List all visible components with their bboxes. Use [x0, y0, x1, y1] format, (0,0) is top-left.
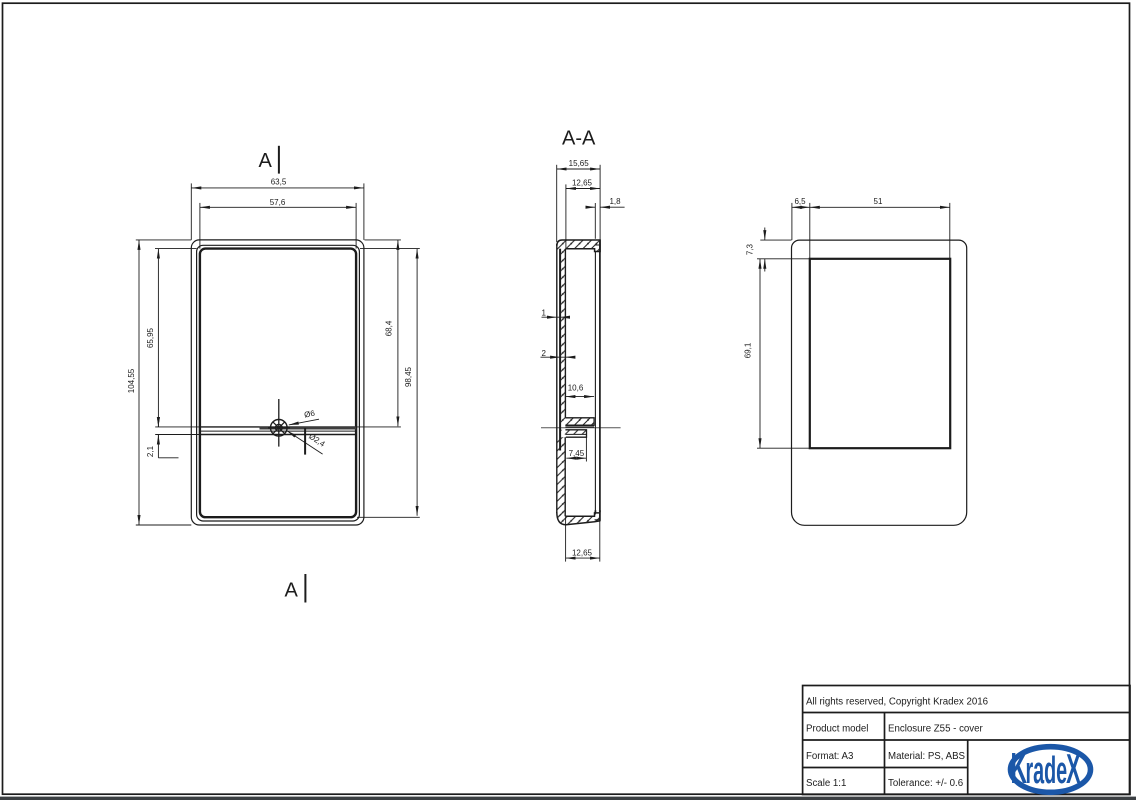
svg-text:98,45: 98,45: [404, 366, 413, 387]
svg-text:15,65: 15,65: [569, 159, 590, 168]
svg-text:A-A: A-A: [562, 128, 596, 150]
svg-text:7,3: 7,3: [745, 243, 754, 255]
svg-text:2: 2: [542, 349, 547, 358]
svg-text:All rights reserved, Copyright: All rights reserved, Copyright Kradex 20…: [806, 697, 988, 708]
svg-text:2,1: 2,1: [146, 445, 155, 457]
svg-text:Scale 1:1: Scale 1:1: [806, 778, 846, 789]
svg-text:65,95: 65,95: [146, 327, 155, 348]
svg-text:1: 1: [542, 309, 547, 318]
svg-text:6,5: 6,5: [794, 197, 806, 206]
svg-text:KradeX: KradeX: [1011, 744, 1082, 793]
svg-text:57,6: 57,6: [270, 198, 286, 207]
svg-text:Tolerance: +/- 0.6: Tolerance: +/- 0.6: [888, 778, 963, 789]
svg-text:12,65: 12,65: [572, 179, 593, 188]
svg-text:Material: PS, ABS: Material: PS, ABS: [888, 751, 966, 762]
svg-text:A: A: [259, 150, 273, 172]
svg-text:Format: A3: Format: A3: [806, 751, 853, 762]
svg-text:51: 51: [874, 197, 883, 206]
svg-text:68,4: 68,4: [385, 320, 394, 336]
svg-text:A: A: [285, 580, 299, 602]
svg-text:69,1: 69,1: [744, 342, 753, 358]
svg-text:7,45: 7,45: [569, 449, 585, 458]
svg-text:12,65: 12,65: [572, 549, 593, 558]
svg-text:Enclosure Z55 - cover: Enclosure Z55 - cover: [888, 724, 984, 735]
svg-text:104,55: 104,55: [127, 368, 136, 393]
svg-text:Product model: Product model: [806, 724, 868, 735]
svg-text:10,6: 10,6: [568, 384, 584, 393]
svg-text:1,8: 1,8: [609, 197, 621, 206]
svg-text:63,5: 63,5: [271, 178, 287, 187]
